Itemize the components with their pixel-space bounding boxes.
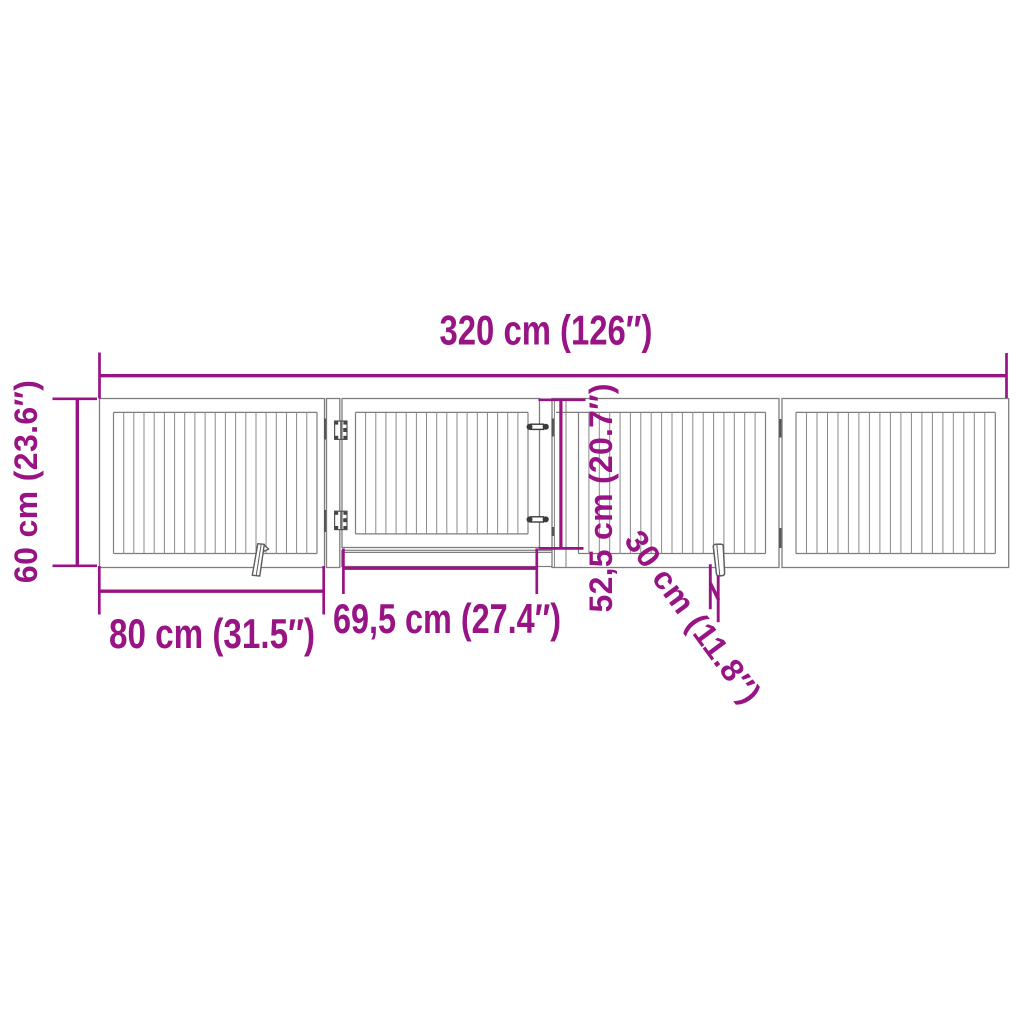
svg-text:52,5 cm (20.7″): 52,5 cm (20.7″)	[583, 384, 619, 613]
svg-text:320 cm (126″): 320 cm (126″)	[440, 307, 653, 354]
svg-text:80 cm (31.5″): 80 cm (31.5″)	[109, 610, 315, 657]
svg-text:69,5 cm (27.4″): 69,5 cm (27.4″)	[333, 595, 561, 642]
svg-text:60 cm (23.6″): 60 cm (23.6″)	[8, 380, 44, 583]
